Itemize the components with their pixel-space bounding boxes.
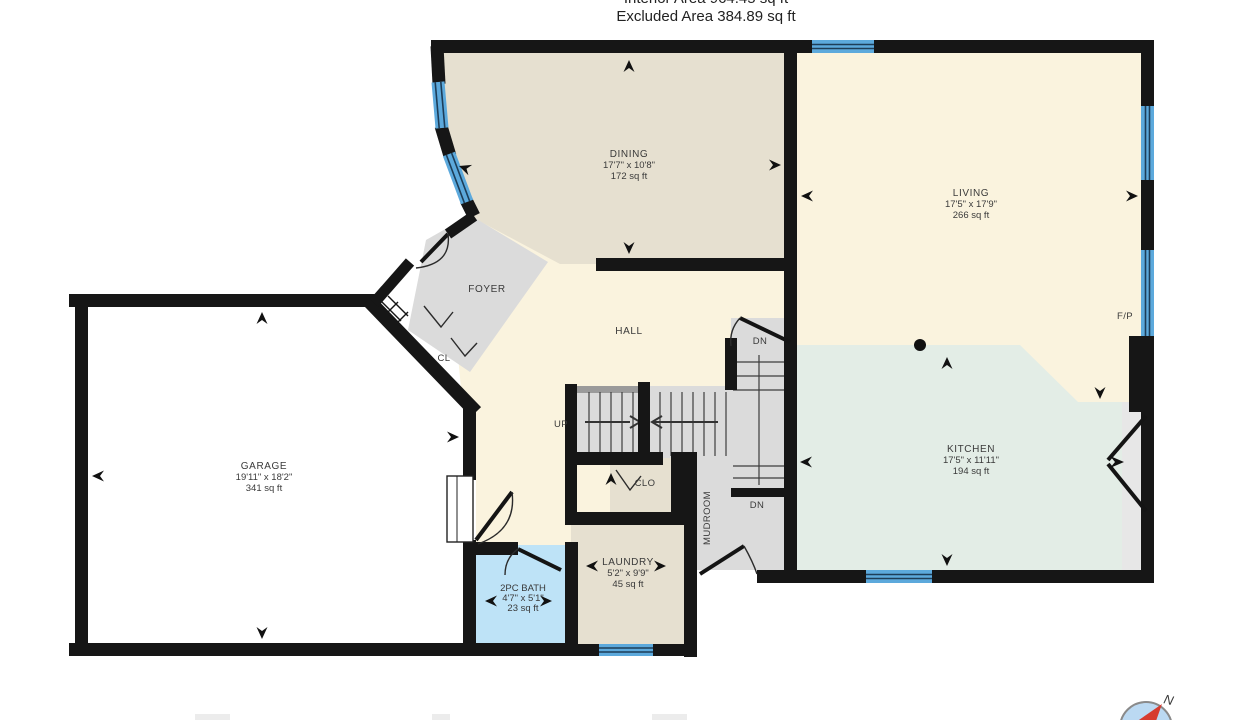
interior-area-label: Interior Area 964.45 sq ft [624, 0, 789, 7]
garage-dims: 19'11" x 18'2" [236, 472, 293, 483]
laundry-dims: 5'2" x 9'9" [607, 568, 649, 579]
garage-area: 341 sq ft [246, 483, 283, 494]
living-dims: 17'5" x 17'9" [945, 199, 997, 210]
laundry-area: 45 sq ft [612, 579, 644, 590]
area-summary: Interior Area 964.45 sq ft Excluded Area… [616, 0, 796, 25]
hall-label: HALL [615, 326, 642, 337]
garage-name: GARAGE [241, 461, 287, 472]
kitchen-bottom-window [866, 570, 932, 583]
living-name: LIVING [953, 188, 989, 199]
excluded-area-label: Excluded Area 384.89 sq ft [616, 8, 796, 25]
structural-column [914, 339, 926, 351]
fireplace-window [1141, 250, 1154, 336]
bath-area: 23 sq ft [507, 603, 539, 614]
watermark-fragments [195, 714, 687, 720]
living-area: 266 sq ft [953, 210, 990, 221]
dining-left-window-1 [435, 82, 445, 128]
foyer-label: FOYER [468, 284, 505, 295]
living-right-window [1141, 106, 1154, 180]
clo-label: CLO [635, 478, 656, 489]
cl-label: CL [438, 353, 451, 364]
dn-top-label: DN [753, 336, 768, 347]
fireplace-label: F/P [1117, 311, 1133, 322]
floorplan-page: Interior Area 964.45 sq ft Excluded Area… [0, 0, 1240, 720]
mudroom-label: MUDROOM [702, 491, 713, 545]
living-top-window [812, 40, 874, 53]
up-label: UP [554, 419, 568, 430]
garage-step [447, 476, 473, 542]
floorplan-canvas: Interior Area 964.45 sq ft Excluded Area… [0, 0, 1240, 720]
laundry-bottom-window [599, 644, 653, 656]
kitchen-dims: 17'5" x 11'11" [943, 455, 999, 466]
kitchen-area: 194 sq ft [953, 466, 990, 477]
laundry-name: LAUNDRY [602, 557, 654, 568]
fireplace-block [1129, 336, 1154, 412]
dining-area: 172 sq ft [611, 171, 648, 182]
dining-name: DINING [610, 149, 649, 160]
dining-dims: 17'7" x 10'8" [603, 160, 655, 171]
dn-bottom-label: DN [750, 500, 765, 511]
kitchen-name: KITCHEN [947, 444, 995, 455]
compass-north-label: N [1162, 691, 1175, 708]
compass: N [1120, 691, 1176, 720]
